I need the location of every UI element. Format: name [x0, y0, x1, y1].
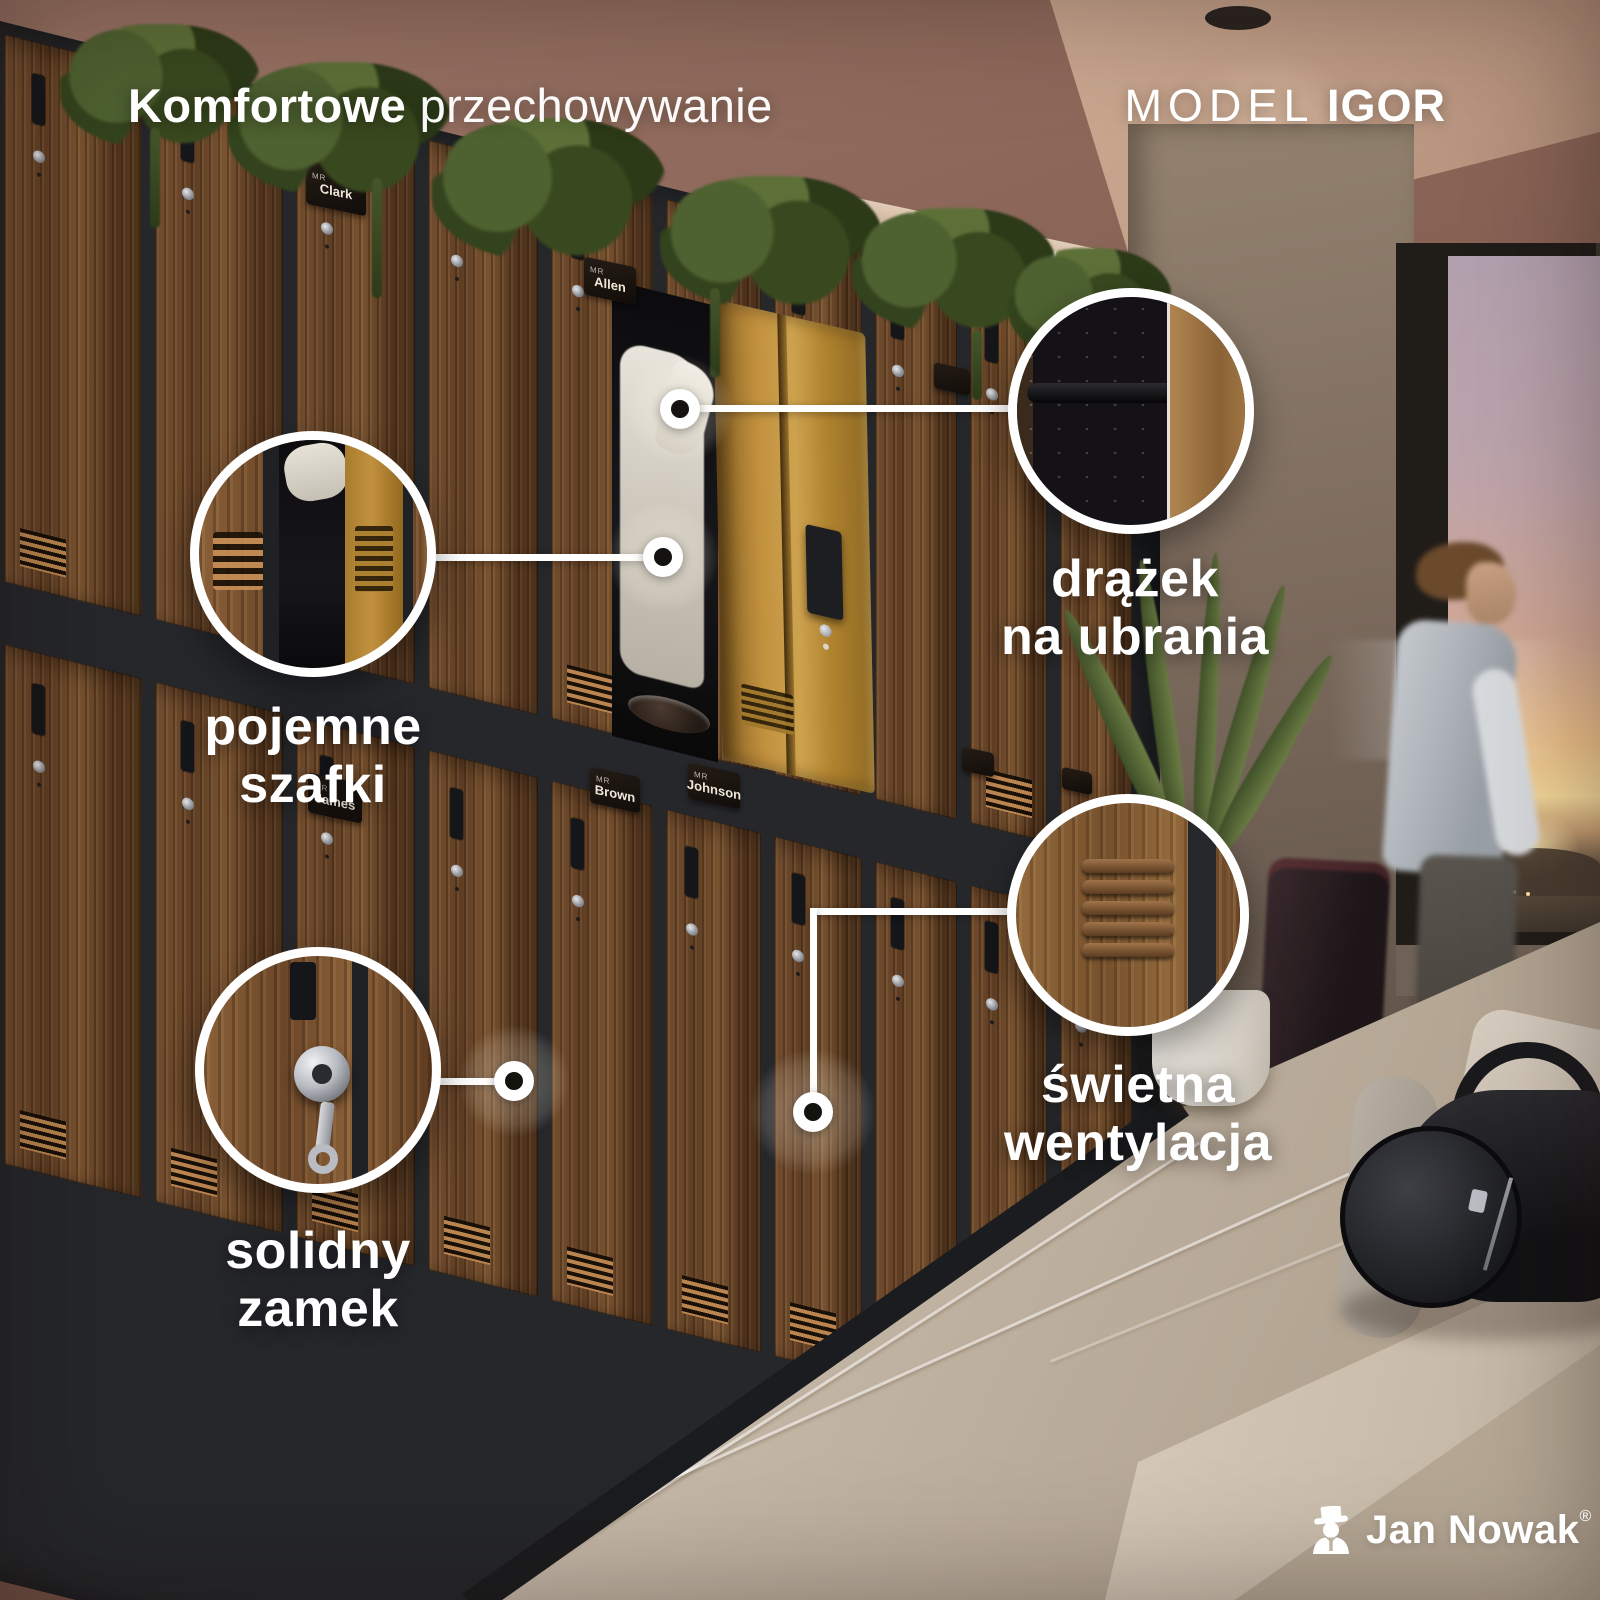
frame-edge	[263, 440, 279, 668]
brand-name: Jan Nowak	[1366, 1508, 1579, 1552]
nameplate-name: Brown	[595, 783, 635, 806]
callout-dot-pojemne	[643, 537, 683, 577]
label-line: pojemne	[128, 698, 498, 756]
model-label: MODEL IGOR	[1100, 80, 1446, 132]
label-line: drążek	[945, 550, 1325, 608]
registered-mark: ®	[1579, 1508, 1591, 1525]
label-line: wentylacja	[948, 1114, 1328, 1172]
nameplate-name: Johnson	[687, 777, 741, 803]
title-light: przechowywanie	[420, 79, 773, 132]
callout-circle-pojemne	[190, 431, 436, 677]
vent-slat	[1082, 859, 1174, 873]
label-line: solidny	[133, 1222, 503, 1280]
callout-label-pojemne: pojemne szafki	[128, 698, 498, 814]
locker-door	[4, 644, 142, 1198]
callout-label-drazek: drążek na ubrania	[945, 550, 1325, 666]
vent-slat	[1082, 880, 1174, 894]
vent-slat	[1082, 943, 1174, 957]
callout-line-wentylacja-h	[813, 908, 1013, 915]
handle-slot	[290, 962, 316, 1020]
ceiling-light-fixture	[1205, 6, 1271, 30]
callout-circle-zamek	[195, 947, 441, 1193]
door-handle	[805, 524, 843, 621]
vent-slat	[1082, 901, 1174, 915]
callout-circle-wentylacja	[1007, 794, 1249, 1036]
wood-edge	[1216, 803, 1240, 1027]
model-name: IGOR	[1327, 80, 1446, 131]
man-face	[1466, 562, 1516, 624]
label-line: szafki	[128, 756, 498, 814]
door-key	[819, 623, 831, 638]
nameplate-name: Allen	[594, 274, 626, 295]
callout-label-zamek: solidny zamek	[133, 1222, 503, 1338]
model-prefix: MODEL	[1124, 80, 1314, 131]
callout-dot-drazek	[660, 389, 700, 429]
ivy-vine	[372, 178, 382, 298]
label-line: świetna	[948, 1056, 1328, 1114]
vent-slat	[1082, 922, 1174, 936]
ivy-vine	[972, 330, 982, 400]
title-bold: Komfortowe	[128, 79, 406, 132]
callout-label-wentylacja: świetna wentylacja	[948, 1056, 1328, 1172]
brand-logo: Jan Nowak®	[1310, 1506, 1591, 1554]
callout-dot-zamek	[494, 1061, 534, 1101]
callout-circle-drazek	[1008, 288, 1254, 534]
label-line: zamek	[133, 1280, 503, 1338]
label-line: na ubrania	[945, 608, 1325, 666]
scene-locker-room: MR Clark MR Allen MR James MR Brown MR J…	[0, 0, 1600, 1600]
keyhole	[312, 1064, 332, 1084]
frame-edge	[1188, 803, 1216, 1027]
duffle-end-cap	[1340, 1126, 1522, 1308]
nameplate-prefix: MR	[590, 266, 604, 277]
ivy-plant	[660, 176, 882, 308]
frame-gap	[352, 956, 368, 1184]
locker-door	[875, 251, 957, 819]
wood-door-edge	[1167, 297, 1254, 525]
page-title: Komfortowe przechowywanie	[128, 78, 773, 133]
ivy-vine	[150, 128, 160, 228]
callout-dot-wentylacja	[793, 1092, 833, 1132]
man-in-hat-icon	[1310, 1506, 1352, 1554]
ivy-plant	[432, 118, 666, 260]
vent-slats	[355, 526, 393, 592]
key-ring	[308, 1144, 338, 1174]
frame-edge	[403, 440, 413, 668]
vent-slats	[213, 532, 263, 590]
